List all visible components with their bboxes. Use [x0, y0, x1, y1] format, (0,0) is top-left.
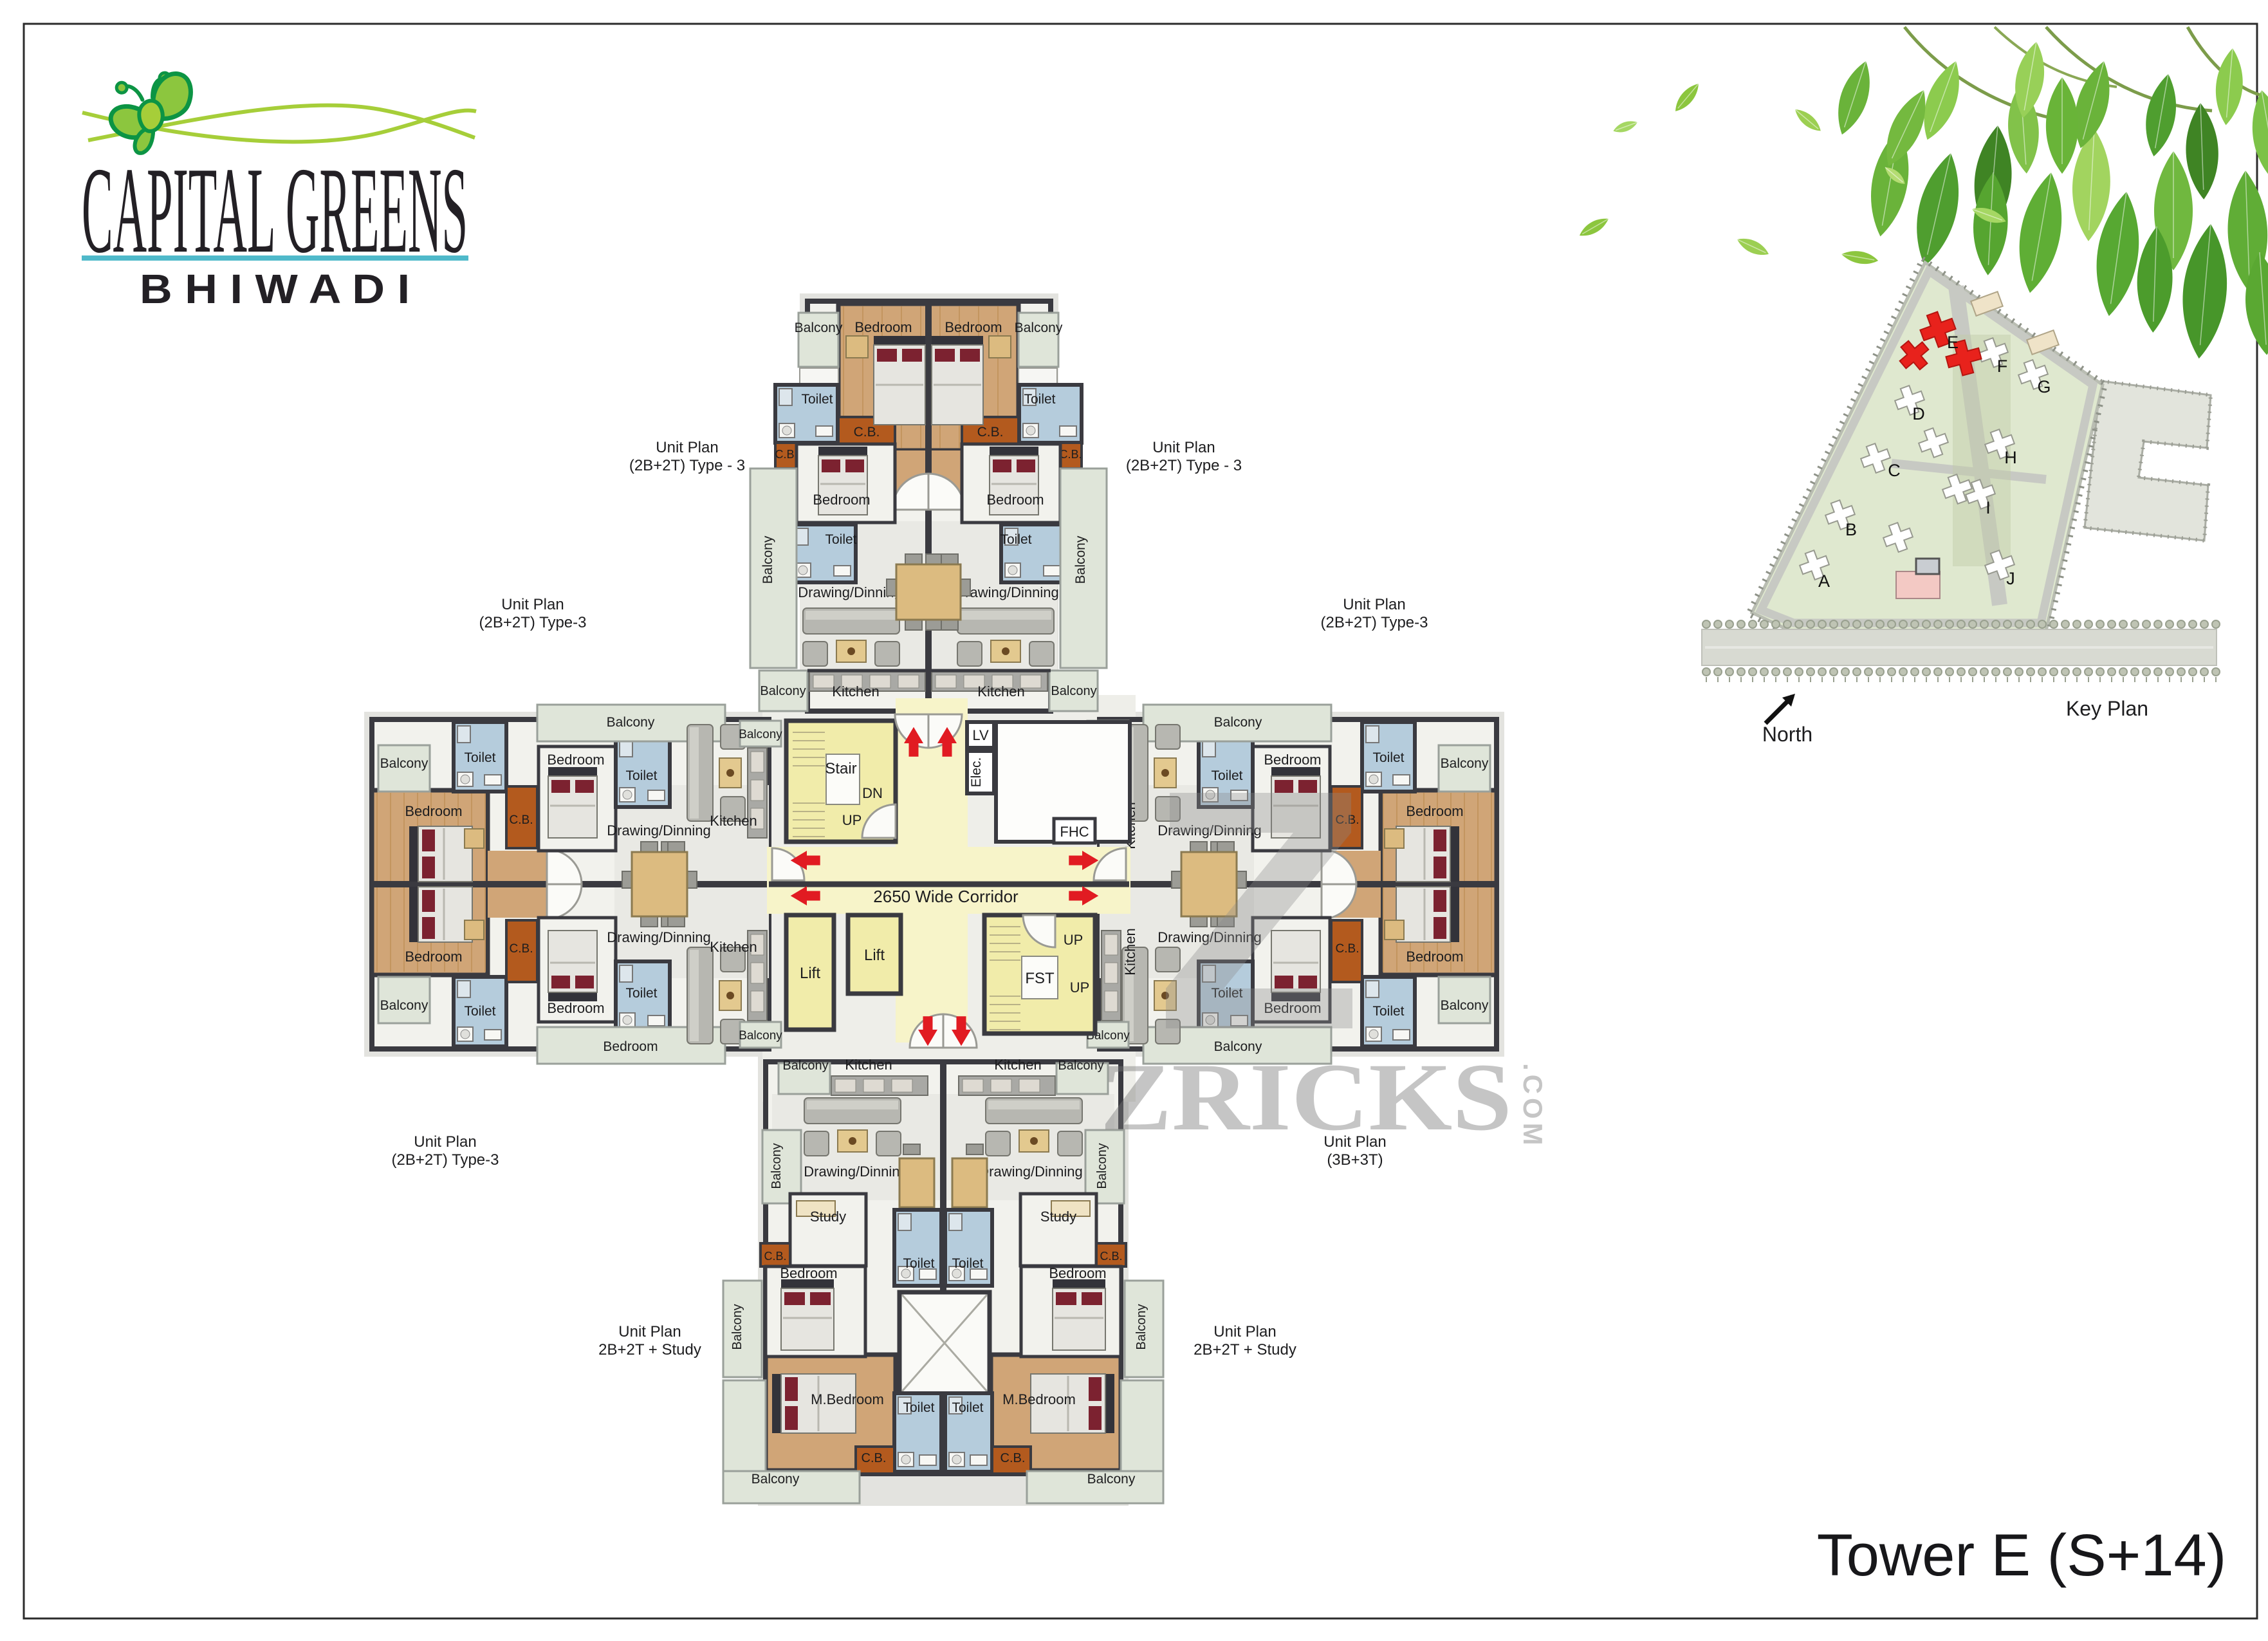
svg-text:Kitchen: Kitchen	[845, 1057, 892, 1073]
svg-text:C.B.: C.B.	[1000, 1451, 1026, 1465]
svg-text:Kitchen: Kitchen	[832, 683, 879, 700]
svg-text:Balcony: Balcony	[761, 535, 775, 584]
svg-text:Toilet: Toilet	[1000, 532, 1031, 547]
svg-text:Bedroom: Bedroom	[945, 319, 1002, 335]
svg-text:I: I	[1986, 498, 1991, 517]
svg-text:Bedroom: Bedroom	[1049, 1265, 1106, 1281]
svg-text:(2B+2T) Type-3: (2B+2T) Type-3	[1321, 614, 1428, 631]
svg-text:Balcony: Balcony	[1058, 1059, 1103, 1073]
svg-text:Drawing/Dinning: Drawing/Dinning	[607, 929, 710, 945]
svg-text:Kitchen: Kitchen	[710, 813, 757, 829]
svg-text:C.B.: C.B.	[1336, 942, 1360, 956]
svg-text:Bedroom: Bedroom	[813, 492, 870, 508]
svg-text:Study: Study	[810, 1209, 846, 1225]
svg-text:M.Bedroom: M.Bedroom	[1002, 1391, 1076, 1407]
svg-text:(2B+2T) Type-3: (2B+2T) Type-3	[479, 614, 587, 631]
svg-text:C.B.: C.B.	[775, 448, 797, 461]
svg-text:Balcony: Balcony	[739, 1029, 782, 1043]
svg-text:Toilet: Toilet	[1024, 392, 1055, 407]
svg-text:Stair: Stair	[825, 760, 856, 777]
svg-text:Key Plan: Key Plan	[2066, 697, 2148, 720]
svg-text:Balcony: Balcony	[730, 1304, 744, 1349]
svg-text:Toilet: Toilet	[464, 1004, 495, 1019]
svg-text:C.B.: C.B.	[977, 425, 1004, 440]
svg-text:Unit Plan: Unit Plan	[501, 596, 564, 613]
svg-text:Toilet: Toilet	[903, 1256, 934, 1271]
svg-text:Balcony: Balcony	[1441, 756, 1489, 771]
svg-text:Bedroom: Bedroom	[405, 949, 462, 965]
svg-text:Balcony: Balcony	[1051, 684, 1096, 698]
svg-text:Bedroom: Bedroom	[603, 1039, 658, 1054]
svg-text:Kitchen: Kitchen	[994, 1057, 1041, 1073]
svg-text:G: G	[2037, 377, 2051, 396]
svg-text:A: A	[1818, 571, 1830, 591]
svg-text:B H I W A D I: B H I W A D I	[140, 266, 410, 312]
svg-text:Unit Plan: Unit Plan	[414, 1133, 476, 1151]
svg-text:M.Bedroom: M.Bedroom	[811, 1391, 884, 1407]
svg-text:B: B	[1845, 520, 1857, 539]
svg-text:Toilet: Toilet	[952, 1256, 983, 1271]
svg-text:Balcony: Balcony	[760, 684, 806, 698]
svg-text:Balcony: Balcony	[380, 998, 429, 1013]
svg-text:UP: UP	[842, 812, 862, 828]
svg-text:C.B.: C.B.	[862, 1451, 887, 1465]
svg-text:J: J	[2006, 569, 2015, 588]
svg-text:Bedroom: Bedroom	[405, 803, 462, 819]
svg-text:Toilet: Toilet	[464, 750, 495, 765]
svg-text:(2B+2T) Type - 3: (2B+2T) Type - 3	[1126, 457, 1242, 474]
svg-text:Balcony: Balcony	[380, 756, 429, 771]
svg-text:Study: Study	[1040, 1209, 1076, 1225]
svg-text:Kitchen: Kitchen	[710, 939, 757, 955]
svg-text:Balcony: Balcony	[1015, 320, 1063, 335]
svg-text:Drawing/Dinning: Drawing/Dinning	[804, 1164, 907, 1180]
svg-text:Toilet: Toilet	[903, 1400, 934, 1415]
svg-text:FST: FST	[1025, 970, 1055, 987]
svg-text:Bedroom: Bedroom	[1264, 752, 1321, 768]
svg-text:Balcony: Balcony	[1214, 715, 1262, 730]
svg-text:Balcony: Balcony	[770, 1143, 784, 1189]
svg-text:C.B.: C.B.	[510, 813, 533, 827]
svg-text:Toilet: Toilet	[625, 768, 657, 783]
svg-text:LV: LV	[972, 727, 989, 743]
svg-text:Toilet: Toilet	[1372, 750, 1404, 765]
svg-text:DN: DN	[862, 785, 883, 801]
svg-text:C.B.: C.B.	[1059, 448, 1082, 461]
svg-text:Drawing/Dinning: Drawing/Dinning	[607, 822, 710, 839]
svg-text:(2B+2T) Type - 3: (2B+2T) Type - 3	[629, 457, 745, 474]
svg-text:2B+2T + Study: 2B+2T + Study	[598, 1341, 701, 1358]
svg-text:Bedroom: Bedroom	[1406, 803, 1463, 819]
svg-text:Balcony: Balcony	[795, 320, 843, 335]
svg-text:Elec.: Elec.	[969, 757, 984, 788]
svg-text:UP: UP	[1070, 979, 1090, 996]
svg-text:Balcony: Balcony	[782, 1059, 828, 1073]
svg-text:Toilet: Toilet	[625, 986, 657, 1001]
svg-text:Bedroom: Bedroom	[854, 319, 912, 335]
svg-text:Toilet: Toilet	[825, 532, 856, 547]
svg-text:.COM: .COM	[1518, 1063, 1548, 1149]
svg-text:C.B.: C.B.	[510, 942, 533, 956]
svg-text:Tower E (S+14): Tower E (S+14)	[1817, 1523, 2227, 1588]
svg-text:Balcony: Balcony	[1441, 998, 1489, 1013]
svg-text:Unit Plan: Unit Plan	[1213, 1323, 1276, 1340]
svg-text:Balcony: Balcony	[739, 728, 782, 741]
svg-text:D: D	[1912, 404, 1925, 423]
svg-text:ZRICKS: ZRICKS	[1100, 1044, 1512, 1151]
svg-text:Unit Plan: Unit Plan	[618, 1323, 681, 1340]
svg-text:Toilet: Toilet	[1372, 1004, 1404, 1019]
svg-text:Unit Plan: Unit Plan	[1152, 439, 1215, 456]
svg-text:(2B+2T) Type-3: (2B+2T) Type-3	[392, 1151, 499, 1169]
svg-text:C.B.: C.B.	[1100, 1250, 1122, 1263]
svg-text:Bedroom: Bedroom	[1406, 949, 1463, 965]
svg-text:FHC: FHC	[1060, 824, 1089, 840]
svg-text:Unit Plan: Unit Plan	[1343, 596, 1405, 613]
svg-text:Toilet: Toilet	[801, 392, 833, 407]
svg-text:Toilet: Toilet	[952, 1400, 983, 1415]
svg-text:North: North	[1762, 723, 1812, 746]
svg-text:Toilet: Toilet	[1211, 768, 1242, 783]
svg-text:2B+2T + Study: 2B+2T + Study	[1194, 1341, 1296, 1358]
svg-text:Bedroom: Bedroom	[547, 752, 604, 768]
svg-text:E: E	[1947, 333, 1959, 352]
svg-text:Bedroom: Bedroom	[547, 1000, 604, 1016]
svg-text:Balcony: Balcony	[1134, 1304, 1148, 1349]
svg-text:(3B+3T): (3B+3T)	[1327, 1151, 1383, 1169]
svg-text:Balcony: Balcony	[751, 1472, 800, 1487]
svg-text:Drawing/Dinning: Drawing/Dinning	[979, 1164, 1082, 1180]
svg-text:2650 Wide Corridor: 2650 Wide Corridor	[873, 887, 1019, 906]
svg-text:Kitchen: Kitchen	[977, 683, 1024, 700]
svg-text:C.B.: C.B.	[854, 425, 880, 440]
svg-text:Lift: Lift	[800, 965, 820, 982]
svg-text:Unit Plan: Unit Plan	[656, 439, 718, 456]
svg-text:C.B.: C.B.	[764, 1250, 786, 1263]
svg-text:Balcony: Balcony	[607, 715, 655, 730]
svg-text:Lift: Lift	[864, 947, 885, 964]
svg-text:C: C	[1888, 461, 1901, 480]
svg-text:Balcony: Balcony	[1087, 1472, 1136, 1487]
svg-text:UP: UP	[1064, 932, 1083, 948]
svg-text:Bedroom: Bedroom	[986, 492, 1044, 508]
svg-text:H: H	[2004, 448, 2017, 467]
svg-text:Kitchen: Kitchen	[1122, 928, 1138, 975]
svg-text:Bedroom: Bedroom	[780, 1265, 837, 1281]
svg-text:Balcony: Balcony	[1073, 535, 1088, 584]
svg-text:F: F	[1997, 357, 2008, 376]
